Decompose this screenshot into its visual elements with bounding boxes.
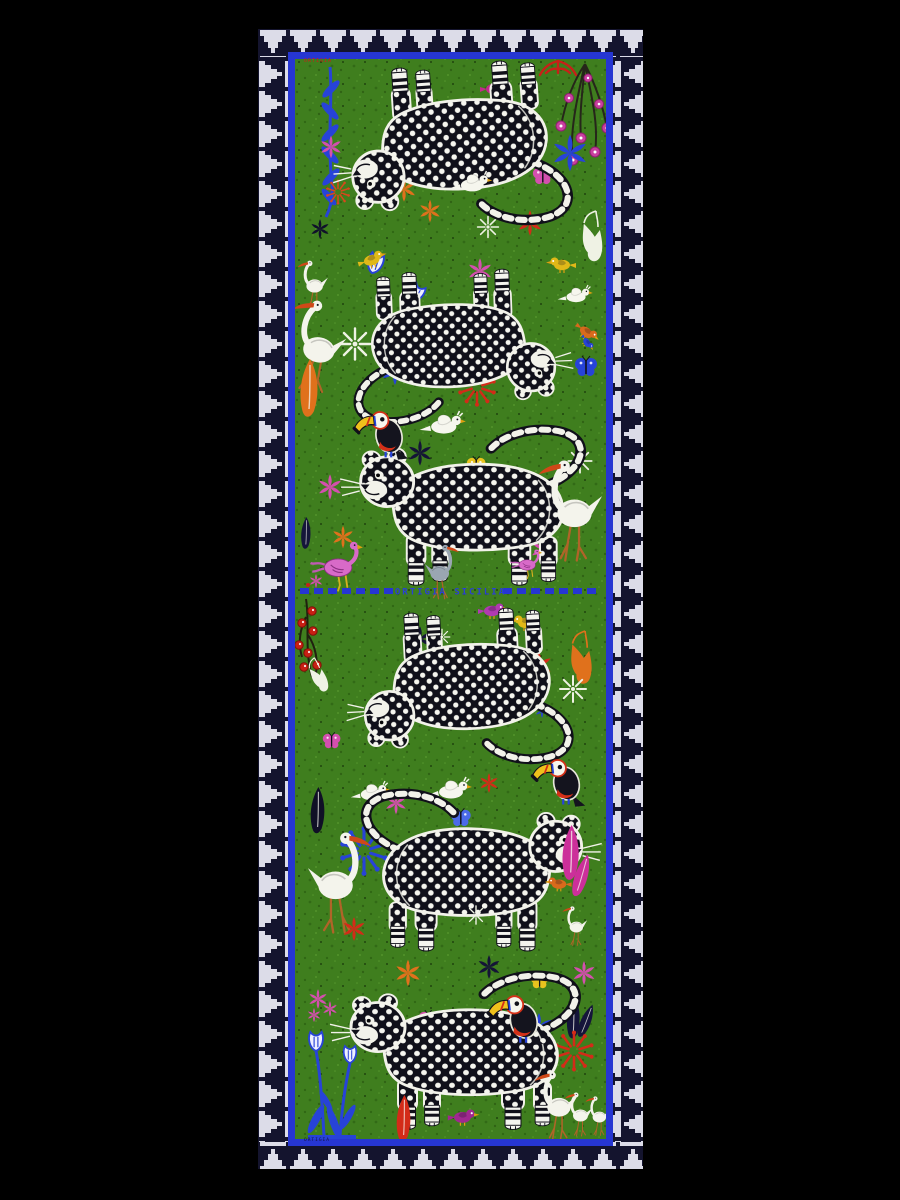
border-pattern-right: [608, 29, 643, 1169]
white-snowflake-flower: [339, 328, 370, 359]
brand-label-bottom-corner: ORTIGIA: [304, 1137, 330, 1143]
white-sparkle: [467, 906, 485, 924]
border-pattern-bottom: [258, 1142, 643, 1169]
brand-label-center: ORTIGIA SICILIA: [395, 588, 506, 598]
brand-label-top-corner: ORTIGIA: [304, 58, 332, 64]
border-pattern-left: [258, 29, 293, 1169]
scarf: ORTIGIA SICILIA ORTIGIA ORTIGIA: [258, 29, 643, 1169]
product-photo-background: ORTIGIA SICILIA ORTIGIA ORTIGIA: [0, 0, 900, 1200]
white-snowflake-flower: [560, 676, 586, 702]
scarf-artwork: ORTIGIA SICILIA ORTIGIA ORTIGIA: [258, 29, 643, 1169]
white-snowflake-flower: [478, 217, 499, 238]
